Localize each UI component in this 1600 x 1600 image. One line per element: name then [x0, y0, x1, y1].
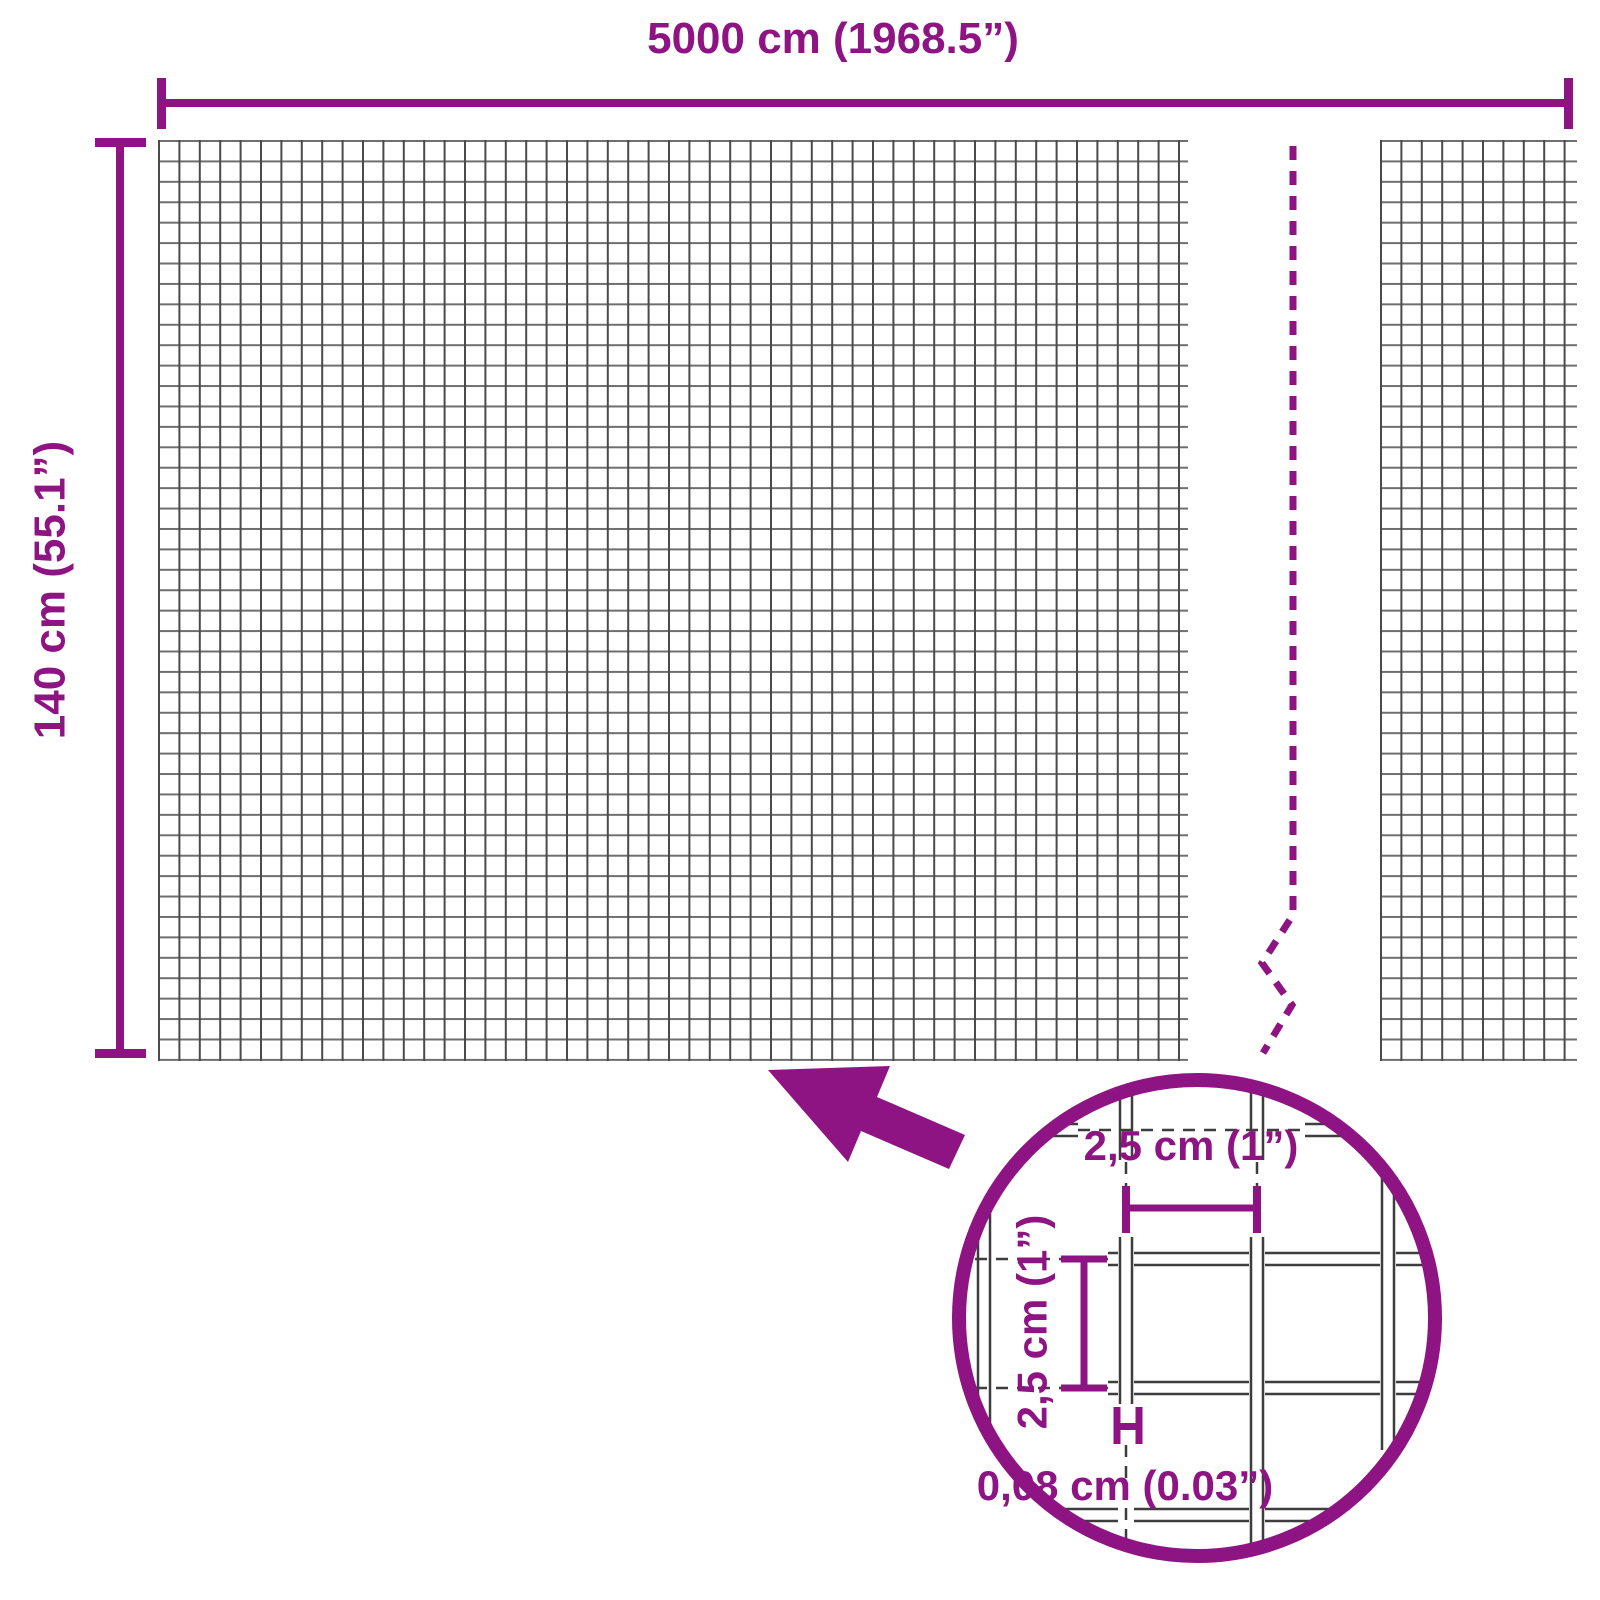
diagram-svg: 5000 cm (1968.5”) 140 cm (55.1”) [0, 0, 1600, 1600]
detail-width-tick-right [1253, 1186, 1261, 1233]
height-dimension-tick-top [95, 138, 146, 147]
wire-thickness-label: 0,08 cm (0.03”) [977, 1462, 1274, 1509]
detail-height-tick-bottom [1061, 1385, 1107, 1392]
width-dimension: 5000 cm (1968.5”) [157, 14, 1573, 129]
height-dimension-line [116, 142, 124, 1054]
detail-width-label: 2,5 cm (1”) [1084, 1122, 1299, 1169]
detail-height-dimension-line [1081, 1259, 1088, 1388]
break-line [1262, 146, 1293, 1053]
mesh-panel-right [1380, 140, 1577, 1061]
height-dimension-label: 140 cm (55.1”) [26, 441, 75, 739]
detail-height-label: 2,5 cm (1”) [1009, 1215, 1056, 1430]
height-dimension-tick-bottom [95, 1049, 146, 1058]
detail-width-tick-left [1122, 1186, 1130, 1233]
width-dimension-label: 5000 cm (1968.5”) [647, 14, 1019, 63]
detail-height-tick-top [1061, 1256, 1107, 1263]
width-dimension-line [159, 99, 1568, 107]
detail-width-dimension-line [1126, 1205, 1257, 1212]
height-dimension: 140 cm (55.1”) [26, 138, 147, 1058]
detail-magnifier: 2,5 cm (1”) 2,5 cm (1”) 0,08 cm (0.03”) [954, 1075, 1445, 1560]
width-dimension-tick-right [1564, 78, 1573, 129]
wire-thickness-bracket-bar [1114, 1423, 1143, 1430]
width-dimension-tick-left [157, 78, 166, 129]
zoom-arrow-icon [768, 1066, 965, 1169]
dimension-diagram: 5000 cm (1968.5”) 140 cm (55.1”) [0, 0, 1600, 1600]
mesh-panel-main [158, 140, 1188, 1061]
